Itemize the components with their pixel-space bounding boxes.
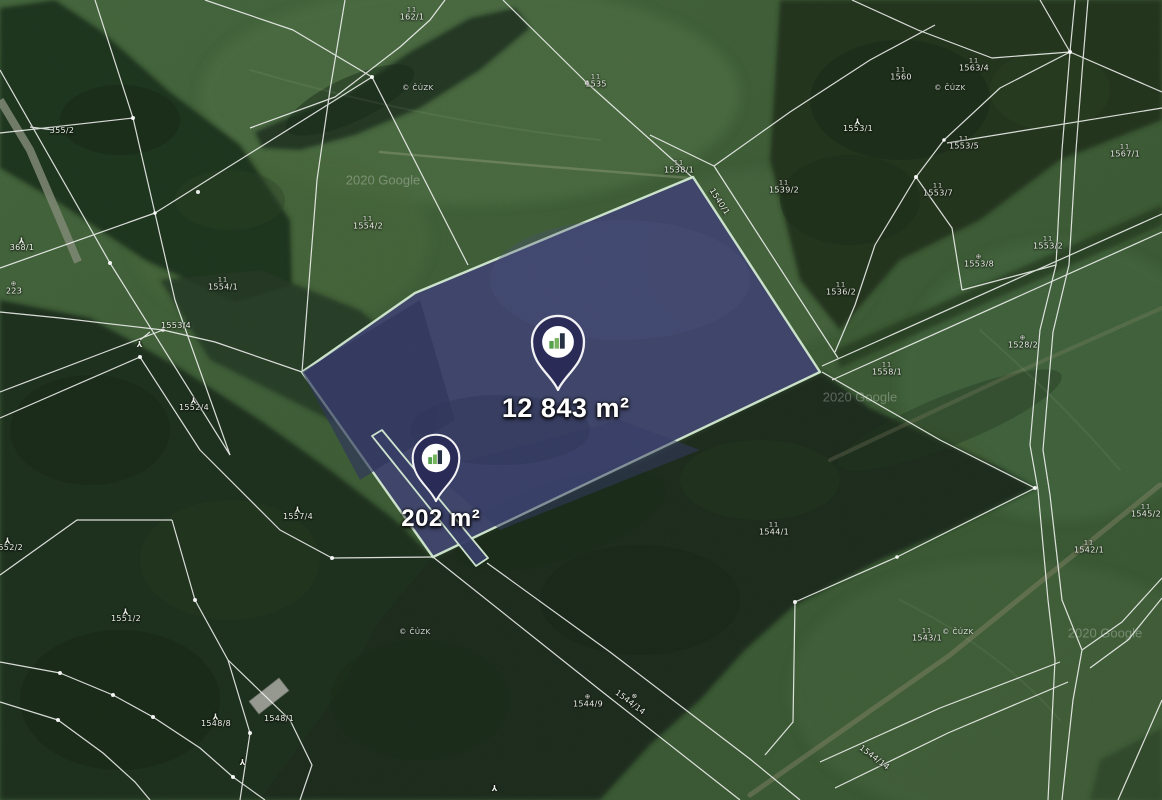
parcel-area-label-small: 202 m² [401, 505, 480, 533]
satellite-map-canvas[interactable]: 355/2Y368/1⊕223111554/1111554/211162/111… [0, 0, 1162, 800]
parcel-number-label: 111544/1 [759, 521, 789, 536]
parcel-number-label: Y368/1 [10, 236, 35, 252]
parcel-number-label: 111539/2 [769, 179, 799, 194]
parcel-number-label: Y1557/4 [283, 505, 313, 521]
parcel-number-label: Y1551/2 [111, 607, 141, 623]
map-attribution-watermark: 2020 Google [1068, 626, 1142, 641]
parcel-area-label-large: 12 843 m² [502, 393, 630, 424]
parcel-number-label: 111536/2 [826, 281, 856, 296]
parcel-number-label: 355/2 [50, 127, 75, 135]
cadastre-copyright-stamp: © ČÚZK [934, 84, 966, 92]
parcel-number-label: 111560 [890, 66, 912, 81]
cadastre-copyright-stamp: © ČÚZK [402, 84, 434, 92]
parcel-number-label: 1548/1 [264, 715, 294, 723]
parcel-number-label: 111558/1 [872, 361, 902, 376]
parcel-number-label: 111563/4 [959, 57, 989, 72]
map-attribution-watermark: 2020 Google [823, 390, 897, 405]
parcel-number-label: 111535 [585, 73, 607, 88]
parcel-number-label: 1553/4 [161, 322, 191, 330]
map-pin-icon [529, 314, 587, 391]
parcel-number-label: 111553/5 [949, 135, 979, 150]
parcel-number-label: 111567/1 [1110, 143, 1140, 158]
parcel-number-label: ⊕1528/2 [1008, 334, 1038, 349]
parcel-number-label: Y1553/1 [843, 117, 873, 133]
parcel-number-label: Y [492, 783, 498, 791]
parcel-number-label: Y1552/4 [179, 396, 209, 412]
parcel-number-label: 111553/7 [923, 182, 953, 197]
cadastre-copyright-stamp: © ČÚZK [942, 628, 974, 636]
map-attribution-watermark: 2020 Google [346, 173, 420, 188]
parcel-number-label: 111542/1 [1074, 539, 1104, 554]
parcel-number-label: Y [240, 757, 246, 765]
parcel-number-label: ⊕1553/8 [964, 253, 994, 268]
cadastre-copyright-stamp: © ČÚZK [399, 628, 431, 636]
parcel-number-label: 111554/1 [208, 276, 238, 291]
parcel-number-label: 111545/2 [1131, 503, 1161, 518]
parcel-number-label: Y1552/2 [0, 536, 23, 552]
parcel-number-label: 111554/2 [353, 215, 383, 230]
parcel-number-label: ⊕1544/9 [573, 693, 603, 708]
parcel-number-label: Y [137, 339, 143, 347]
parcel-number-label: Y1548/8 [201, 712, 231, 728]
parcel-number-label: 111543/1 [912, 627, 942, 642]
parcel-number-label: 11162/1 [400, 6, 425, 21]
parcel-number-label: ⊕223 [6, 280, 22, 295]
map-pin-icon [410, 433, 462, 502]
parcel-number-label: 111553/2 [1033, 235, 1063, 250]
parcel-number-label: 111538/1 [664, 159, 694, 174]
